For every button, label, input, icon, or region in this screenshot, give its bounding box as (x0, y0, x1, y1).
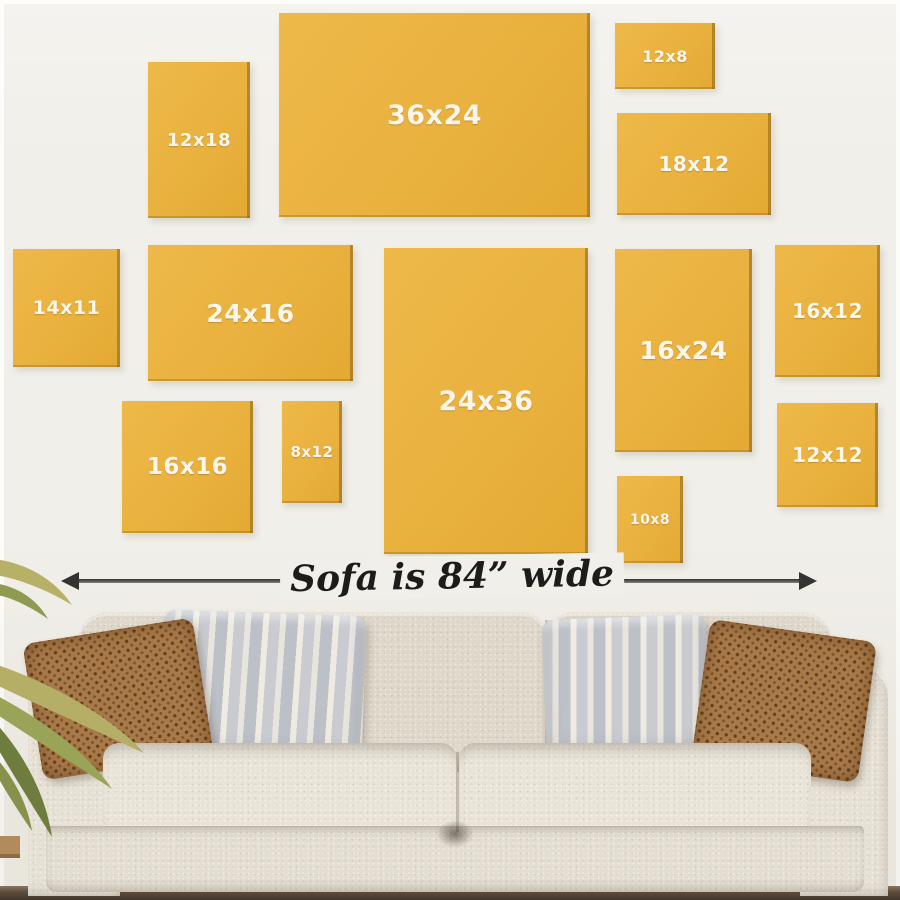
frame-size-label: 12x12 (792, 443, 863, 467)
frame-size-label: 18x12 (658, 152, 729, 176)
frame-8x12: 8x12 (282, 401, 342, 503)
frame-10x8: 10x8 (617, 476, 683, 563)
frame-size-label: 24x36 (438, 386, 533, 417)
frame-size-label: 16x24 (639, 336, 727, 365)
frame-18x12: 18x12 (617, 113, 771, 215)
frame-16x24: 16x24 (615, 249, 752, 452)
frame-14x11: 14x11 (13, 249, 120, 367)
seat-gap-shadow (436, 820, 474, 848)
frame-size-label: 36x24 (387, 100, 482, 131)
frame-size-label: 8x12 (291, 443, 334, 461)
size-guide-image: 12x18 36x24 12x8 18x12 14x11 24x16 24x36… (0, 0, 900, 900)
plant-leaves (0, 545, 150, 885)
sofa-seat-cushion-left (103, 743, 457, 839)
frame-12x12: 12x12 (777, 403, 878, 507)
frame-12x18: 12x18 (148, 62, 250, 218)
frame-size-label: 14x11 (33, 297, 101, 319)
frame-size-label: 10x8 (630, 512, 670, 528)
striped-pillow-right (542, 614, 711, 762)
frame-16x12: 16x12 (775, 245, 880, 377)
arrow-right-head-icon (799, 572, 817, 590)
frame-size-label: 16x16 (147, 454, 228, 480)
sofa-seat-cushion-right (459, 743, 811, 839)
frame-size-label: 24x16 (206, 299, 294, 328)
frame-24x16: 24x16 (148, 245, 353, 381)
sofa-width-label: Sofa is 84” wide (280, 552, 625, 600)
frame-36x24: 36x24 (279, 13, 590, 217)
frame-size-label: 12x18 (167, 130, 231, 151)
frame-size-label: 12x8 (642, 47, 688, 66)
frame-16x16: 16x16 (122, 401, 253, 533)
frame-24x36: 24x36 (384, 248, 588, 554)
frame-size-label: 16x12 (792, 299, 863, 323)
frame-12x8: 12x8 (615, 23, 715, 89)
